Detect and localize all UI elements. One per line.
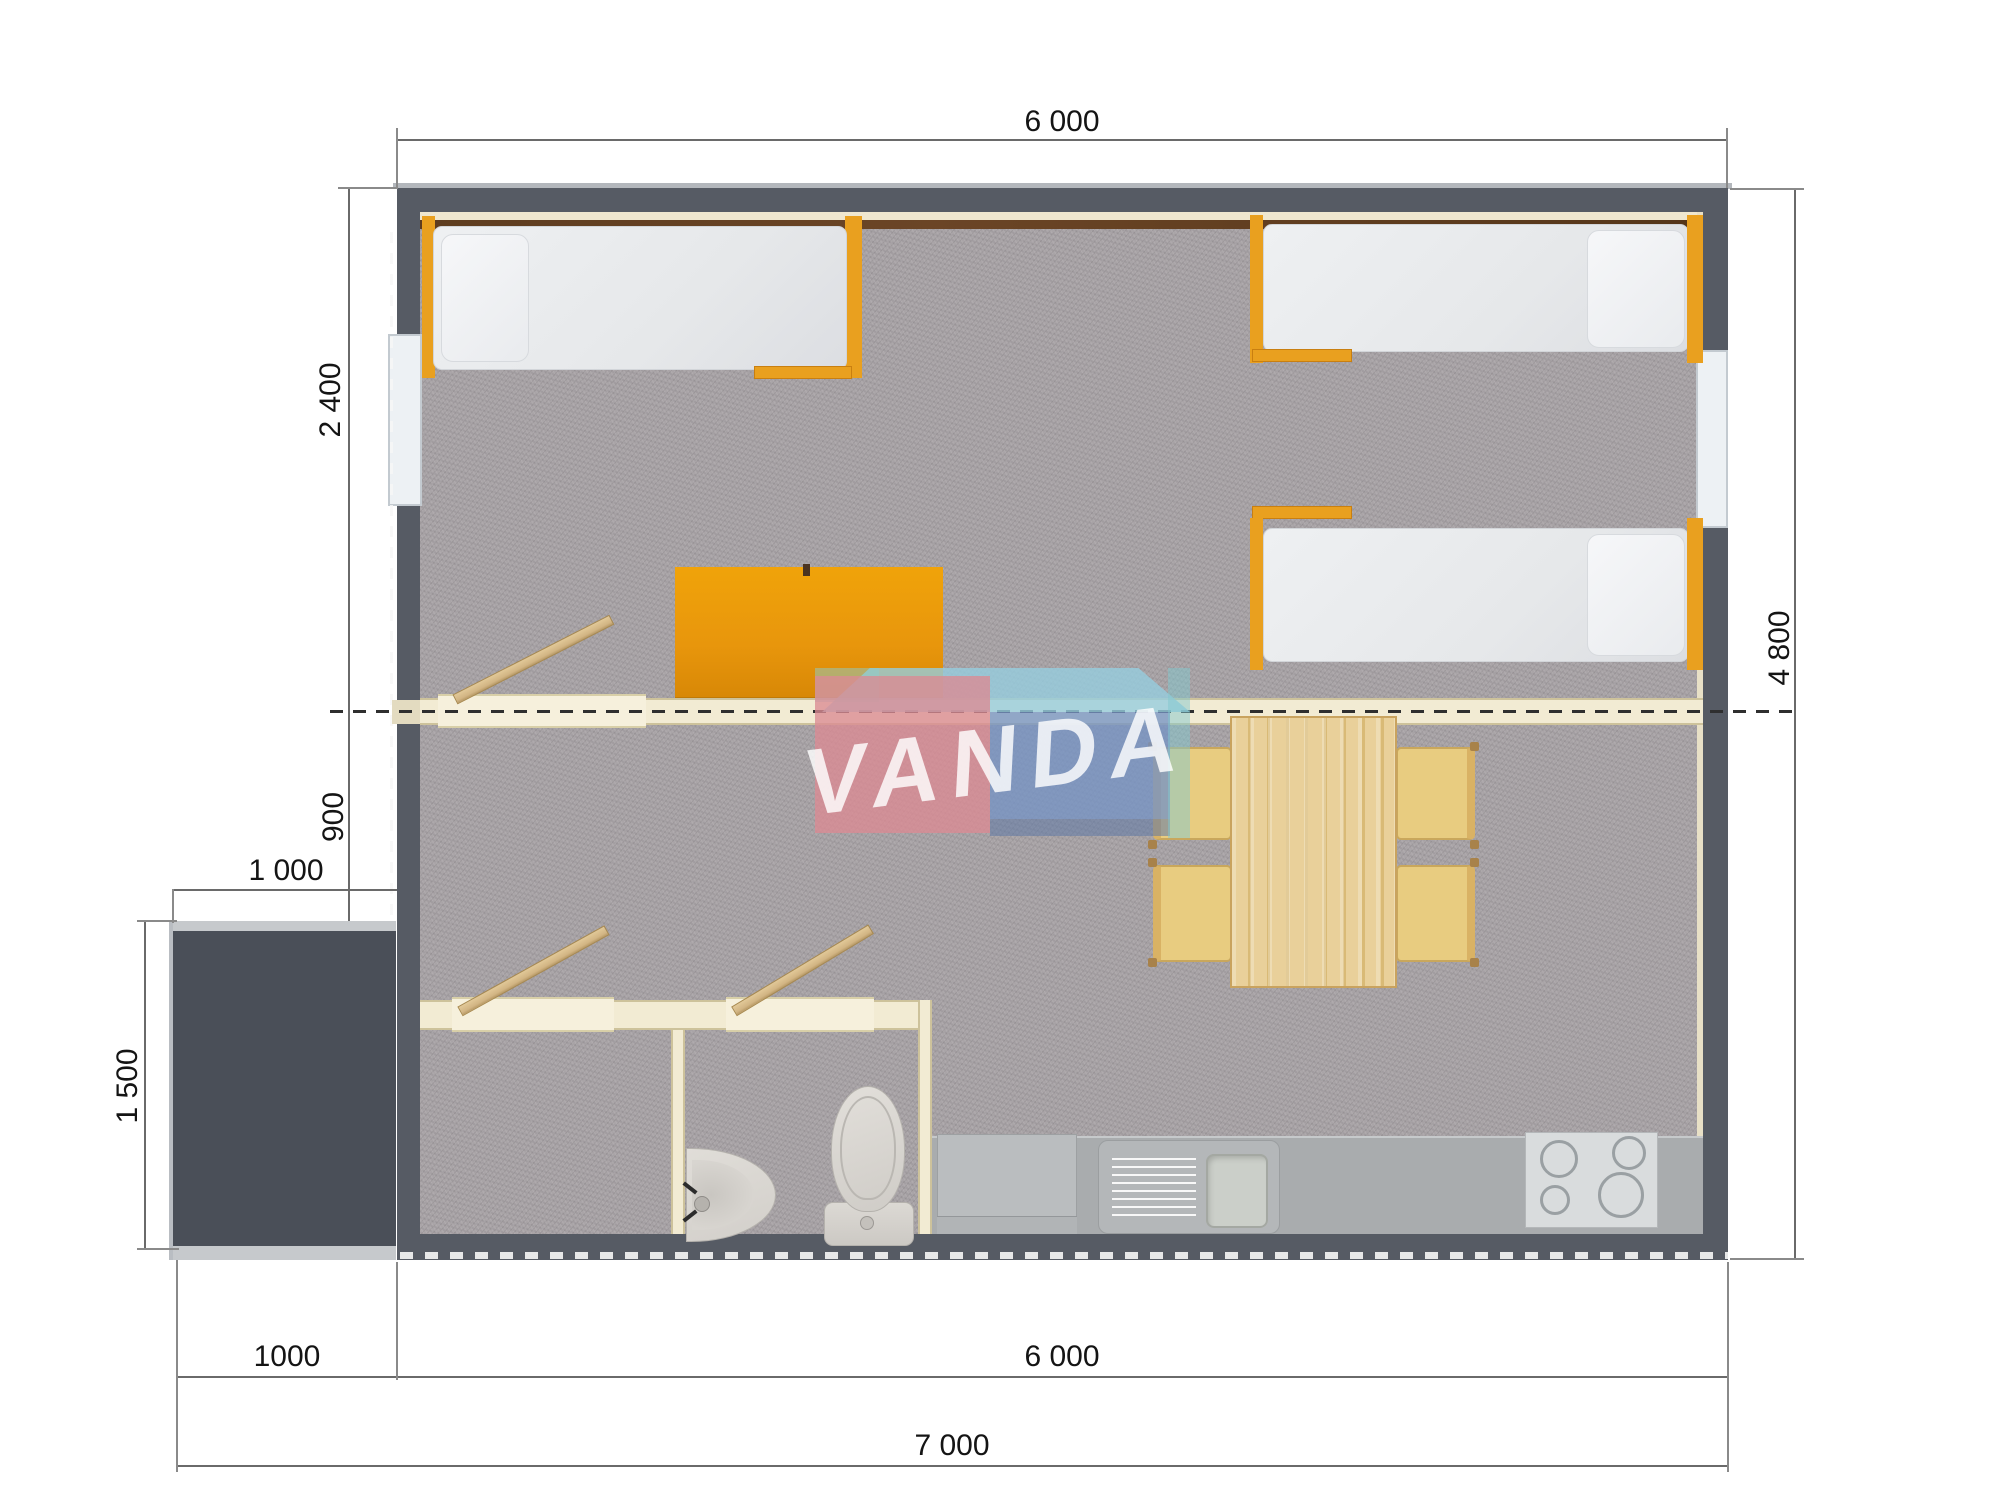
ext-line xyxy=(396,1262,398,1380)
dining-table xyxy=(1230,716,1397,988)
sink-drainboard-ribs xyxy=(1112,1158,1196,1222)
chair-leg-nub xyxy=(1148,858,1157,867)
ext-line xyxy=(1730,1258,1804,1260)
chair-leg-nub xyxy=(1470,742,1479,751)
porch-deck xyxy=(173,921,396,1260)
dim-label-bottom-body-width: 6 000 xyxy=(1024,1340,1099,1374)
ext-line xyxy=(172,889,174,923)
ext-line xyxy=(1726,128,1728,188)
dim-label-bottom-total-width: 7 000 xyxy=(914,1429,989,1463)
ext-line xyxy=(176,1260,178,1472)
bed-right-lower-pillow xyxy=(1587,534,1685,656)
bathroom-right-wall xyxy=(918,1000,932,1234)
bed-left-side-rail xyxy=(754,366,852,379)
dim-line-1000-top xyxy=(173,889,397,891)
bed-right-upper-rail xyxy=(1252,349,1352,362)
dim-label-porch-width: 1 000 xyxy=(248,854,323,888)
logo-blue-shadow xyxy=(990,819,1170,836)
bathroom-divider-wall xyxy=(671,1030,685,1234)
dim-label-right-height: 4 800 xyxy=(1763,610,1797,685)
toilet-seat-line xyxy=(840,1096,896,1200)
left-wall-window xyxy=(388,334,422,506)
ext-line xyxy=(396,128,398,188)
stove-burner-small-bottom-left xyxy=(1540,1185,1570,1215)
porch-left-edge xyxy=(169,921,173,1260)
bed-right-lower-headboard xyxy=(1250,518,1263,670)
ext-line xyxy=(137,920,177,922)
dim-line-4800 xyxy=(1794,188,1796,1260)
right-wall-window xyxy=(1696,350,1728,528)
dining-chair-bottom-left xyxy=(1153,865,1232,962)
stove-burner-small-top-right xyxy=(1612,1136,1646,1170)
chair-leg-nub xyxy=(1148,840,1157,849)
dim-label-porch-depth: 1 500 xyxy=(111,1048,145,1123)
washbasin-faucet xyxy=(694,1196,710,1212)
bed-right-upper-footboard xyxy=(1687,215,1703,363)
ext-line xyxy=(137,1248,179,1250)
kitchen-appliance-base xyxy=(937,1216,1077,1234)
left-roof-overhang-dashes xyxy=(390,232,393,920)
dim-label-top-width: 6 000 xyxy=(1024,105,1099,139)
wardrobe-handle-notch xyxy=(803,564,810,576)
top-wall-lining xyxy=(420,212,1703,220)
dining-chair-bottom-right xyxy=(1396,865,1475,962)
dining-chair-top-right xyxy=(1396,747,1475,840)
sink-basin xyxy=(1206,1154,1268,1228)
bottom-roof-overhang-dashes xyxy=(400,1252,1728,1259)
porch-top-step xyxy=(173,921,396,931)
chair-leg-nub xyxy=(1148,958,1157,967)
stove-burner-large-bottom-right xyxy=(1598,1172,1644,1218)
porch-bottom-step xyxy=(173,1246,396,1260)
bed-right-upper-headboard xyxy=(1250,215,1263,363)
floor-plan-canvas: VANDA 6 000 4 800 2 400 900 1 000 1 500 … xyxy=(0,0,2000,1502)
dim-line-bottom-7000 xyxy=(176,1465,1728,1467)
dim-line-top-6000 xyxy=(397,139,1728,141)
bed-right-upper-pillow xyxy=(1587,230,1685,348)
bed-left-pillow xyxy=(441,234,529,362)
bed-right-lower-rail xyxy=(1252,506,1352,519)
dim-label-bottom-porch-width: 1000 xyxy=(254,1340,321,1374)
stove-burner-large-top-left xyxy=(1540,1140,1578,1178)
dim-label-bedroom-depth: 2 400 xyxy=(314,362,348,437)
chair-leg-nub xyxy=(1470,958,1479,967)
chair-leg-nub xyxy=(1470,840,1479,849)
ext-line xyxy=(1730,188,1804,190)
bed-left-footboard xyxy=(845,216,862,378)
dim-line-bottom-6000 xyxy=(176,1376,1728,1378)
toilet-flush-button xyxy=(860,1216,874,1230)
bed-right-lower-footboard xyxy=(1687,518,1703,670)
ext-line xyxy=(1727,1262,1729,1472)
ext-line xyxy=(338,187,398,189)
chair-leg-nub xyxy=(1470,858,1479,867)
dim-label-hall-depth: 900 xyxy=(317,792,351,842)
